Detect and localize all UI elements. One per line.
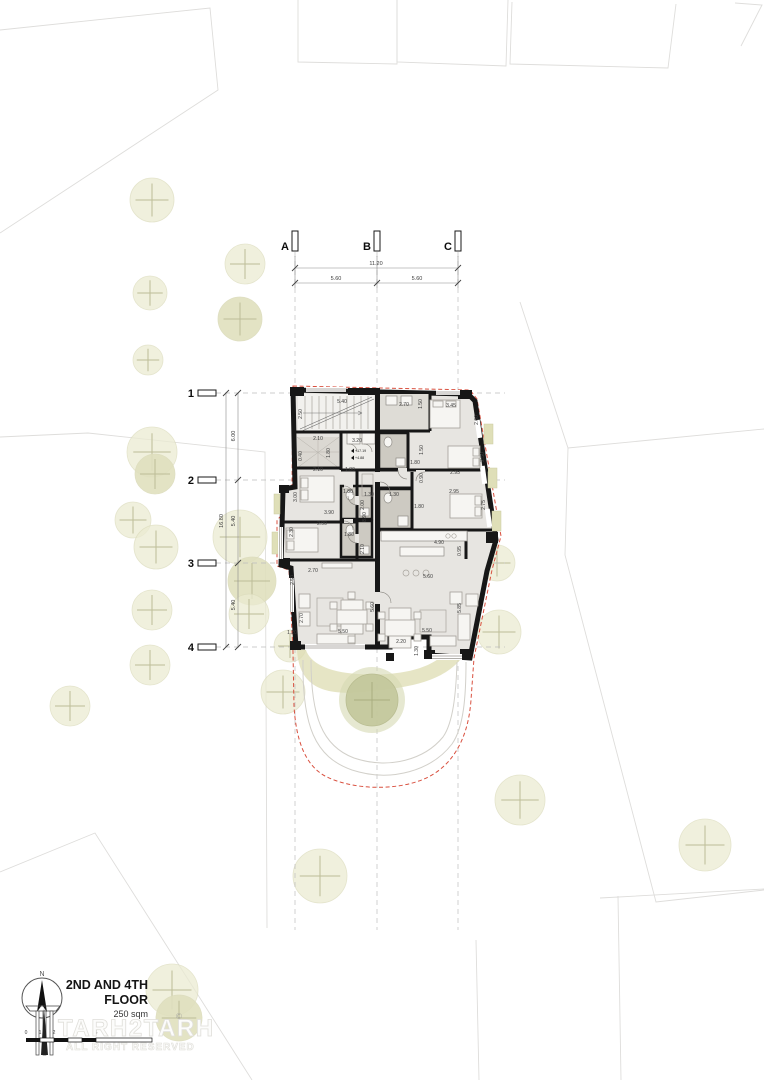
- dimension-label: 2.00: [360, 500, 366, 510]
- elevator-2: [362, 433, 375, 444]
- tree-icon: [130, 645, 170, 685]
- dimension-label: 2.50: [290, 575, 296, 585]
- dimension-label: 1.80: [326, 448, 332, 458]
- dimension-label: 2.10: [360, 544, 366, 554]
- dimension-label: 3.20: [352, 438, 362, 444]
- dimension-label: 1.50: [419, 445, 425, 455]
- dimension-label: 1.30: [389, 492, 399, 498]
- grid-row-label: 3: [188, 558, 194, 570]
- toilet-icon: [384, 437, 392, 447]
- dim-left-seg3: 5.40: [231, 600, 237, 611]
- tree-icon: [477, 610, 521, 654]
- dimension-label: 0.95: [457, 546, 463, 556]
- sofa: [458, 614, 470, 640]
- courtyard-tree: [339, 667, 405, 733]
- dimension-label: 1.80: [410, 460, 420, 466]
- grid-row-label: 2: [188, 475, 194, 487]
- tree-icon: [130, 178, 174, 222]
- elevation-label: +4.88: [355, 456, 364, 460]
- dimension-label: 2.70: [299, 613, 305, 623]
- dimension-label: 5.50: [338, 629, 348, 635]
- dimension-label: 5.50: [422, 628, 432, 634]
- dimension-label: 2.90: [317, 521, 327, 527]
- copyright-mark: ©: [176, 1012, 182, 1021]
- tree-icon: [261, 670, 305, 714]
- watermark-brand: TARH2TARH: [58, 1015, 215, 1042]
- dimension-label: 5.60: [370, 602, 376, 612]
- dimension-label: 1.30: [364, 492, 374, 498]
- dimension-label: 2.70: [308, 568, 318, 574]
- dimension-label: 1.20: [287, 630, 297, 636]
- sheet-title-line2: FLOOR: [104, 993, 148, 1007]
- tree-icon: [495, 775, 545, 825]
- dimension-label: 3.90: [324, 510, 334, 516]
- dim-top-seg1: 5.60: [331, 276, 342, 282]
- dimension-label: 4.90: [434, 540, 444, 546]
- dimension-label: 2.95: [449, 489, 459, 495]
- dimension-label: 2.60: [474, 415, 480, 425]
- dimension-label: 1.50: [418, 399, 424, 409]
- tree-icon: [225, 244, 265, 284]
- dimension-label: 2.20: [396, 639, 406, 645]
- armchair: [466, 594, 478, 606]
- armchair: [299, 594, 310, 608]
- grid-row-label: 4: [188, 642, 195, 654]
- north-label: N: [39, 971, 44, 978]
- dimension-label: 0.40: [298, 451, 304, 461]
- tree-icon: [132, 590, 172, 630]
- dimension-label: 0.90: [419, 473, 425, 483]
- dimension-label: 2.50: [298, 409, 304, 419]
- dimension-label: 5.60: [423, 574, 433, 580]
- dimension-label: 2.95: [450, 470, 460, 476]
- sofa: [430, 636, 456, 646]
- staircase: [298, 394, 374, 431]
- bed: [300, 476, 334, 502]
- dimension-label: 1.80: [345, 467, 355, 473]
- tv-unit: [322, 563, 352, 568]
- bed: [450, 494, 482, 518]
- scale-number: 1: [39, 1030, 42, 1036]
- tree-icon: [679, 819, 731, 871]
- elevation-label: +17.19: [355, 449, 366, 453]
- dimension-label: 1.30: [414, 646, 420, 656]
- sheet-title-line1: 2ND AND 4TH: [66, 978, 148, 992]
- drawing-sheet: ABC1234 11.20 5.60 5.60 16.80 6.00 5.40 …: [0, 0, 764, 1080]
- grid-row-label: 1: [188, 388, 194, 400]
- dimension-label: 1.80: [344, 532, 354, 538]
- dim-left-seg2: 5.40: [231, 516, 237, 527]
- dimension-label: 5.85: [457, 603, 463, 613]
- dim-top-seg2: 5.60: [412, 276, 423, 282]
- dimension-label: 2.75: [481, 500, 487, 510]
- tree-icon: [218, 297, 262, 341]
- scale-number: 0: [25, 1030, 28, 1036]
- tree-icon: [134, 525, 178, 569]
- dimension-label: 2.10: [313, 436, 323, 442]
- dimension-label: 2.70: [399, 402, 409, 408]
- grid-column-label: B: [363, 241, 371, 253]
- dimension-label: 3.45: [446, 403, 456, 409]
- tree-icon: [135, 454, 175, 494]
- tree-icon: [133, 345, 163, 375]
- dim-top-total: 11.20: [369, 261, 382, 267]
- dimension-label: 1.80: [414, 504, 424, 510]
- bed: [448, 446, 480, 468]
- dimension-label: 2.10: [313, 467, 323, 473]
- sink-icon: [396, 458, 405, 466]
- dim-left-seg1: 6.00: [231, 431, 237, 442]
- dimension-label: 2.30: [289, 527, 295, 537]
- dimension-label: 5.40: [337, 399, 347, 405]
- grid-column-label: A: [281, 241, 289, 253]
- dim-left-total: 16.80: [219, 514, 225, 528]
- tree-icon: [50, 686, 90, 726]
- watermark-rights: ALL RIGHT RESERVED: [66, 1042, 195, 1053]
- floor-plan-canvas: ABC1234 11.20 5.60 5.60 16.80 6.00 5.40 …: [0, 0, 764, 1080]
- dimension-label: 1.80: [343, 489, 353, 495]
- scale-number: 2: [53, 1030, 56, 1036]
- grid-column-label: C: [444, 241, 452, 253]
- tree-icon: [293, 849, 347, 903]
- shower-icon: [398, 516, 408, 526]
- dimension-label: 2.50: [480, 452, 486, 462]
- tree-icon: [133, 276, 167, 310]
- building-plan: [272, 387, 501, 661]
- dimension-label: 8.90: [362, 512, 368, 522]
- dimension-label: 3.00: [293, 492, 299, 502]
- kitchen-island: [400, 547, 444, 556]
- armchair: [450, 592, 462, 604]
